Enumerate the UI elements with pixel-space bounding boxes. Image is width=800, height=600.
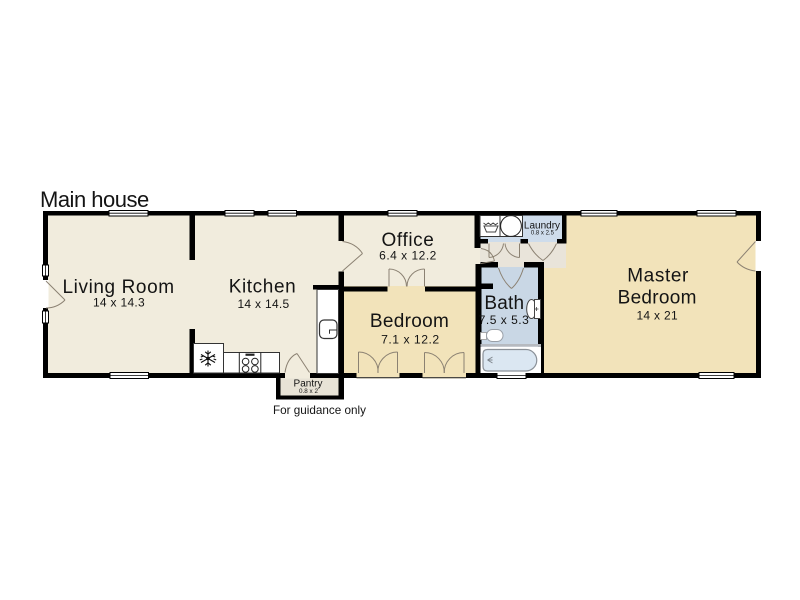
svg-text:Bedroom: Bedroom	[618, 288, 697, 309]
svg-text:For guidance only: For guidance only	[273, 404, 366, 417]
svg-text:Master: Master	[627, 266, 689, 287]
svg-text:Bedroom: Bedroom	[370, 311, 449, 332]
svg-text:14 x 21: 14 x 21	[636, 309, 677, 323]
svg-text:0.8 x 2.5: 0.8 x 2.5	[531, 231, 555, 237]
svg-text:14 x 14.5: 14 x 14.5	[237, 297, 289, 311]
svg-text:14 x 14.3: 14 x 14.3	[93, 296, 145, 310]
svg-text:7.1 x 12.2: 7.1 x 12.2	[381, 332, 440, 346]
svg-text:Kitchen: Kitchen	[229, 277, 297, 298]
svg-text:6.4 x 12.2: 6.4 x 12.2	[379, 249, 437, 263]
svg-text:7.5 x 5.3: 7.5 x 5.3	[479, 313, 530, 327]
svg-text:Bath: Bath	[484, 293, 524, 314]
svg-text:Main house: Main house	[40, 187, 149, 212]
svg-text:0.8 x 2: 0.8 x 2	[299, 388, 318, 395]
